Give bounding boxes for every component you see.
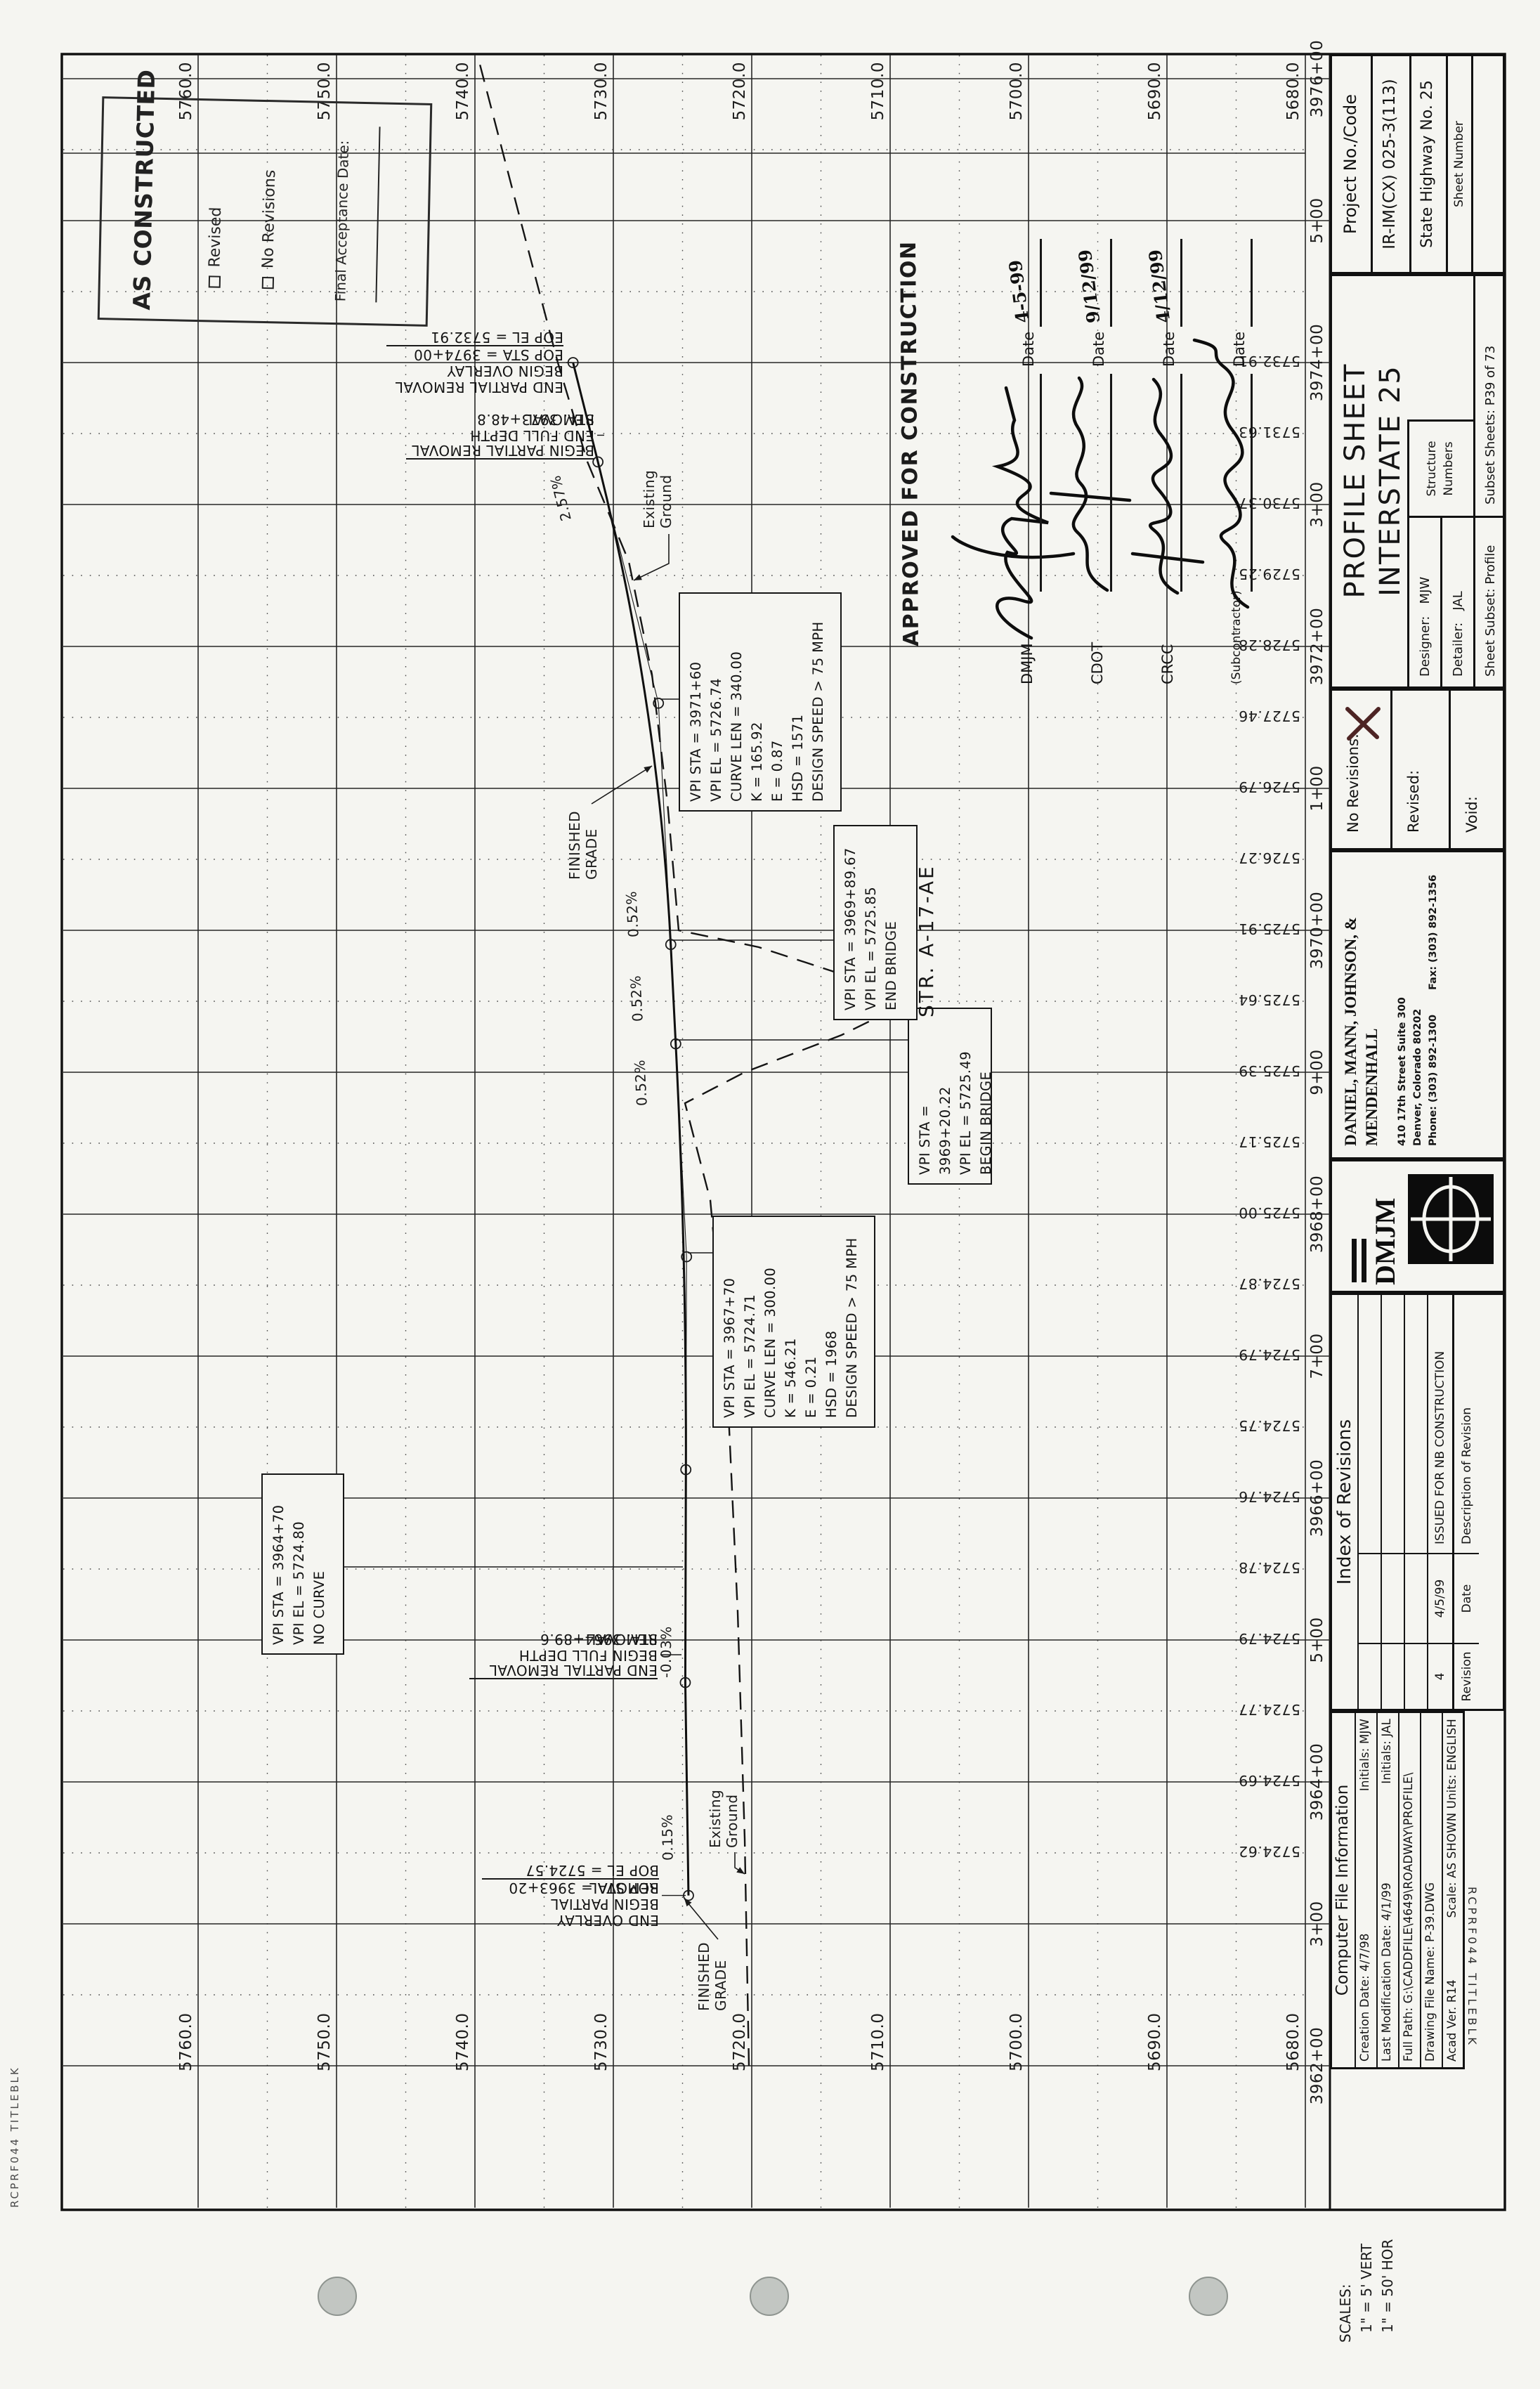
cfi-row-filename: Drawing File Name: P-39.DWG bbox=[1420, 1713, 1442, 2067]
scales-note: SCALES: 1" = 5' VERT 1" = 50' HOR bbox=[1335, 2239, 1398, 2343]
cfi-title: Computer File Information bbox=[1332, 1713, 1355, 2067]
landscape-sheet: 5760.05760.05750.05750.05740.05740.05730… bbox=[0, 0, 1540, 2389]
firm-addr-1: 410 17th Street Suite 300 bbox=[1397, 997, 1408, 1146]
approval-agency: DMJM bbox=[1019, 643, 1036, 684]
cfi-lastmod-initials: Initials: JAL bbox=[1380, 1719, 1398, 1784]
station-callout-line: BEGIN PARTIAL REMOVAL bbox=[482, 1896, 659, 1912]
vpi-data-line: CURVE LEN = 300.00 bbox=[760, 1225, 781, 1418]
scanned-profile-sheet: { "stamp": { "title": "AS CONSTRUCTED", … bbox=[0, 0, 1540, 2389]
station-callout-line: STA. 3964+89.6 bbox=[469, 1631, 658, 1647]
approval-date-value: 4/12/99 bbox=[1145, 248, 1175, 324]
elevation-label-left: 5710.0 bbox=[869, 2013, 887, 2071]
elevation-label-right: 5720.0 bbox=[731, 62, 749, 146]
cfi-row-acad: Acad Ver. R14 Scale: AS SHOWN Units: ENG… bbox=[1442, 1713, 1464, 2067]
date-line bbox=[1180, 239, 1182, 327]
vpi-data-line: DESIGN SPEED > 75 MPH bbox=[842, 1225, 862, 1418]
signature-line bbox=[1180, 374, 1182, 592]
stamp-revised-row: Revised bbox=[206, 207, 225, 287]
elevation-label-left: 5700.0 bbox=[1007, 2013, 1026, 2071]
subset-sheets-cell: Subset Sheets: P39 of 73 bbox=[1473, 275, 1505, 518]
structure-id-label: STR. A-17-AE bbox=[915, 864, 938, 1017]
ior-revision-value: 4 bbox=[1428, 1644, 1452, 1709]
profile-elevation-value: 5724.78 bbox=[1181, 1559, 1300, 1576]
firm-phone: Phone: (303) 892-1300 bbox=[1428, 1015, 1439, 1146]
vpi-data-line: VPI STA = 3971+60 bbox=[686, 602, 706, 802]
station-callout-line: BEGIN PARTIAL REMOVAL bbox=[406, 443, 594, 460]
profile-elevation-value: 5726.79 bbox=[1181, 779, 1300, 795]
vpi-data-line: BEGIN BRIDGE bbox=[976, 1017, 996, 1175]
station-callout: END OVERLAYBEGIN PARTIAL REMOVALBOP STA … bbox=[482, 1863, 659, 1928]
sheet-title-line1: PROFILE SHEET bbox=[1339, 275, 1371, 686]
ior-header-row: Revision Date Description of Revision bbox=[1452, 1295, 1479, 1709]
vpi-data-line: NO CURVE bbox=[309, 1483, 329, 1645]
profile-elevation-value: 5724.79 bbox=[1181, 1346, 1300, 1363]
ior-revision-header: Revision bbox=[1454, 1644, 1479, 1709]
station-label: 3974+00 bbox=[1308, 320, 1326, 405]
station-label: 5+00 bbox=[1308, 178, 1326, 263]
approval-block: APPROVED FOR CONSTRUCTION DMJMDate4-5-99… bbox=[898, 239, 1277, 689]
stamp-norev-row: No Revisions bbox=[259, 170, 280, 289]
date-line bbox=[1110, 239, 1112, 327]
ior-empty-row bbox=[1381, 1295, 1404, 1709]
state-highway-number: State Highway No. 25 bbox=[1409, 56, 1446, 272]
as-constructed-stamp: AS CONSTRUCTED Revised No Revisions Fina… bbox=[98, 96, 433, 327]
approval-date-value: 4-5-99 bbox=[1005, 259, 1033, 324]
vpi-data-box: VPI STA = 3969+89.67VPI EL = 5725.85END … bbox=[833, 825, 918, 1020]
project-code-box: Project No./Code IR-IM(CX) 025-3(113) St… bbox=[1330, 54, 1505, 274]
vpi-data-line: VPI STA = 3969+20.22 bbox=[915, 1017, 955, 1175]
elevation-label-right: 5740.0 bbox=[454, 62, 472, 146]
ior-date-header: Date bbox=[1454, 1554, 1479, 1644]
dmjm-logo-box: DMJM bbox=[1330, 1159, 1505, 1293]
profile-elevation-value: 5727.46 bbox=[1181, 708, 1300, 724]
cfi-row-fullpath: Full Path: G:\CADDFILE\4649\ROADWAY\PROF… bbox=[1398, 1713, 1420, 2067]
no-revisions-field-label: No Revisions: bbox=[1345, 734, 1362, 833]
vpi-data-line: K = 165.92 bbox=[747, 602, 767, 802]
station-callout-line: BEGIN FULL DEPTH REMOVAL bbox=[469, 1647, 658, 1663]
station-label: 3966+00 bbox=[1308, 1456, 1326, 1540]
structure-label-2: Numbers bbox=[1440, 422, 1457, 516]
vpi-data-box: VPI STA = 3967+70VPI EL = 5724.71CURVE L… bbox=[712, 1216, 875, 1428]
revised-checkbox bbox=[209, 275, 221, 287]
station-callout-line: EOP STA = 3974+00 bbox=[386, 346, 563, 363]
station-label: 9+00 bbox=[1308, 1030, 1326, 1114]
revised-field-label: Revised: bbox=[1405, 770, 1422, 833]
signature-line bbox=[1040, 374, 1042, 592]
ground-grade-label: ExistingGround bbox=[707, 1790, 740, 1848]
profile-elevation-value: 5724.76 bbox=[1181, 1488, 1300, 1505]
vpi-data-line: VPI EL = 5724.80 bbox=[289, 1483, 309, 1645]
cfi-acad-ver: Acad Ver. R14 bbox=[1445, 1979, 1464, 2062]
cfi-row-lastmod: Last Modification Date: 4/1/99 Initials:… bbox=[1376, 1713, 1398, 2067]
station-callout-line: END PARTIAL REMOVAL bbox=[469, 1663, 658, 1679]
station-callout-line: STA. 3973+48.8 bbox=[406, 411, 594, 427]
station-callout: BEGIN PARTIAL REMOVALEND FULL DEPTH REMO… bbox=[406, 411, 594, 460]
vpi-data-line: CURVE LEN = 340.00 bbox=[726, 602, 747, 802]
profile-elevation-value: 5724.77 bbox=[1181, 1701, 1300, 1718]
scales-title: SCALES: bbox=[1335, 2239, 1356, 2343]
station-label: 3976+00 bbox=[1308, 37, 1326, 121]
station-label: 3964+00 bbox=[1308, 1740, 1326, 1824]
ior-empty-row bbox=[1357, 1295, 1381, 1709]
approval-date-value: 9/12/99 bbox=[1075, 248, 1104, 324]
no-revisions-checkbox bbox=[262, 277, 274, 289]
sheet-title-box: PROFILE SHEET INTERSTATE 25 Designer: MJ… bbox=[1330, 274, 1505, 689]
profile-elevation-value: 5725.17 bbox=[1181, 1133, 1300, 1150]
profile-elevation-value: 5725.00 bbox=[1181, 1204, 1300, 1221]
cfi-creation-initials: Initials: MJW bbox=[1358, 1719, 1376, 1791]
firm-name-2: MENDENHALL bbox=[1363, 1029, 1381, 1146]
ground-grade-label: ExistingGround bbox=[641, 470, 674, 528]
signature-line bbox=[1251, 374, 1253, 592]
station-callout-line: BOP STA = 3963+20 bbox=[482, 1880, 659, 1896]
dmjm-logo-text: DMJM bbox=[1369, 1198, 1402, 1285]
elevation-label-left: 5720.0 bbox=[731, 2013, 749, 2071]
dmjm-logo-bar bbox=[1352, 1239, 1357, 1282]
elevation-label-left: 5760.0 bbox=[177, 2013, 195, 2071]
vpi-data-line: VPI EL = 5725.85 bbox=[861, 835, 881, 1010]
no-revisions-label: No Revisions bbox=[259, 170, 279, 269]
ior-description-value: ISSUED FOR NB CONSTRUCTION bbox=[1428, 1295, 1452, 1554]
ground-grade-label: FINISHEDGRADE bbox=[696, 1942, 729, 2011]
date-line bbox=[1251, 239, 1253, 327]
final-acceptance-label: Final Acceptance Date: bbox=[332, 140, 352, 301]
vpi-data-line: VPI EL = 5724.71 bbox=[740, 1225, 760, 1418]
final-acceptance-line bbox=[375, 126, 380, 302]
sheet-number-label: Sheet Number bbox=[1446, 56, 1471, 272]
vpi-data-line: DESIGN SPEED > 75 MPH bbox=[808, 602, 828, 802]
approval-signature-rows: DMJMDate4-5-99CDOTDate9/12/99CRCCDate4/1… bbox=[898, 239, 1277, 689]
elevation-label-right: 5680.0 bbox=[1284, 62, 1303, 146]
status-void: Void: bbox=[1449, 691, 1507, 848]
revision-status-box: No Revisions: Revised: Void: bbox=[1330, 689, 1505, 850]
station-callout: END PARTIAL REMOVALBEGIN OVERLAYEOP STA … bbox=[386, 330, 563, 395]
ior-description-header: Description of Revision bbox=[1454, 1295, 1479, 1554]
vpi-data-box: VPI STA = 3971+60VPI EL = 5726.74CURVE L… bbox=[679, 592, 842, 812]
firm-box: DANIEL, MANN, JOHNSON, & MENDENHALL 410 … bbox=[1330, 850, 1505, 1159]
elevation-label-right: 5700.0 bbox=[1007, 62, 1026, 146]
elevation-label-left: 5680.0 bbox=[1284, 2013, 1303, 2071]
station-callout-line: END OVERLAY bbox=[482, 1912, 659, 1928]
grade-percent-label: -0.03% bbox=[658, 1626, 674, 1678]
station-label: 3972+00 bbox=[1308, 604, 1326, 689]
approval-date-label: Date bbox=[1020, 332, 1037, 367]
plot-file-tag: RCPRF044 TITLEBLK bbox=[1466, 1887, 1479, 2069]
ground-grade-label: FINISHEDGRADE bbox=[566, 811, 600, 880]
detailer-cell: Detailer: JAL bbox=[1440, 518, 1473, 686]
profile-elevation-value: 5724.62 bbox=[1181, 1843, 1300, 1860]
plot-file-tag-margin: RCPRF044 TITLEBLK bbox=[8, 2066, 21, 2208]
ior-date-value: 4/5/99 bbox=[1428, 1554, 1452, 1644]
no-revisions-x-mark bbox=[1342, 702, 1384, 744]
detailer-value: JAL bbox=[1451, 591, 1466, 610]
station-label: 3968+00 bbox=[1308, 1172, 1326, 1256]
sheet-subset-cell: Sheet Subset: Profile bbox=[1473, 518, 1505, 686]
cfi-scale-units: Scale: AS SHOWN Units: ENGLISH bbox=[1445, 1719, 1464, 1918]
cfi-drawing-file-name: Drawing File Name: P-39.DWG bbox=[1423, 1882, 1442, 2062]
ior-empty-row bbox=[1404, 1295, 1427, 1709]
vpi-data-line: E = 0.21 bbox=[801, 1225, 821, 1418]
scales-hor: 1" = 50' HOR bbox=[1377, 2239, 1398, 2343]
dmjm-emblem-icon bbox=[1408, 1174, 1494, 1264]
elevation-label-left: 5690.0 bbox=[1146, 2013, 1164, 2071]
stamp-title: AS CONSTRUCTED bbox=[128, 106, 159, 311]
final-acceptance-row: Final Acceptance Date: bbox=[332, 140, 352, 301]
vpi-data-line: K = 546.21 bbox=[781, 1225, 801, 1418]
station-label: 3+00 bbox=[1308, 462, 1326, 547]
sheet-title-line2: INTERSTATE 25 bbox=[1374, 275, 1407, 686]
designer-value: MJW bbox=[1418, 577, 1433, 604]
vpi-data-line: VPI EL = 5726.74 bbox=[706, 602, 726, 802]
sheet-number-value bbox=[1471, 56, 1505, 272]
elevation-label-right: 5710.0 bbox=[869, 62, 887, 146]
station-callout-line: BOP EL = 5724.57 bbox=[482, 1863, 659, 1880]
firm-name-1: DANIEL, MANN, JOHNSON, & bbox=[1342, 917, 1360, 1146]
profile-elevation-value: 5725.39 bbox=[1181, 1062, 1300, 1079]
vpi-data-line: VPI STA = 3969+89.67 bbox=[840, 835, 861, 1010]
profile-elevation-value: 5724.69 bbox=[1181, 1772, 1300, 1789]
station-label: 3970+00 bbox=[1308, 888, 1326, 972]
date-line bbox=[1040, 239, 1042, 327]
vpi-data-line: HSD = 1968 bbox=[821, 1225, 842, 1418]
station-label: 3+00 bbox=[1308, 1882, 1326, 1966]
firm-fax: Fax: (303) 892-1356 bbox=[1428, 875, 1439, 990]
station-label: 5+00 bbox=[1308, 1598, 1326, 1682]
station-callout-line: BEGIN OVERLAY bbox=[386, 363, 563, 379]
approval-agency: CDOT bbox=[1089, 642, 1106, 684]
station-callout: END PARTIAL REMOVALBEGIN FULL DEPTH REMO… bbox=[469, 1631, 658, 1679]
vpi-data-box: VPI STA = 3969+20.22VPI EL = 5725.49BEGI… bbox=[908, 1008, 992, 1185]
ior-title: Index of Revisions bbox=[1332, 1295, 1357, 1709]
profile-elevation-value: 5725.91 bbox=[1181, 920, 1300, 937]
profile-elevation-value: 5724.75 bbox=[1181, 1417, 1300, 1434]
elevation-label-right: 5730.0 bbox=[592, 62, 611, 146]
elevation-label-right: 5690.0 bbox=[1146, 62, 1164, 146]
station-label: 1+00 bbox=[1308, 746, 1326, 831]
ior-data-row: 4 4/5/99 ISSUED FOR NB CONSTRUCTION bbox=[1427, 1295, 1452, 1709]
approval-date-label: Date bbox=[1090, 332, 1107, 367]
project-code-label: Project No./Code bbox=[1332, 56, 1371, 272]
designer-cell: Designer: MJW bbox=[1407, 518, 1440, 686]
dmjm-logo-bar bbox=[1362, 1239, 1366, 1282]
elevation-label-left: 5750.0 bbox=[315, 2013, 334, 2071]
firm-addr-2: Denver, Colorado 80202 bbox=[1412, 1009, 1423, 1146]
scales-vert: 1" = 5' VERT bbox=[1356, 2239, 1377, 2343]
grade-percent-label: 0.15% bbox=[658, 1814, 676, 1861]
designer-label: Designer: bbox=[1418, 616, 1433, 677]
approval-agency: (Subcontractor) bbox=[1229, 590, 1244, 684]
cfi-row-creation: Creation Date: 4/7/98 Initials: MJW bbox=[1355, 1713, 1376, 2067]
revised-label: Revised bbox=[206, 207, 225, 267]
station-callout-line: END FULL DEPTH REMOVAL bbox=[406, 427, 594, 443]
profile-plot-area: 5760.05760.05750.05750.05740.05740.05730… bbox=[0, 0, 1540, 2389]
profile-elevation-value: 5726.27 bbox=[1181, 850, 1300, 866]
station-label: 3962+00 bbox=[1308, 2024, 1326, 2108]
cfi-lastmod-date: Last Modification Date: 4/1/99 bbox=[1380, 1882, 1398, 2062]
vpi-data-box: VPI STA = 3964+70VPI EL = 5724.80NO CURV… bbox=[261, 1473, 344, 1655]
vpi-data-line: VPI EL = 5725.49 bbox=[955, 1017, 976, 1175]
approval-date-label: Date bbox=[1231, 332, 1248, 367]
vpi-data-line: VPI STA = 3964+70 bbox=[268, 1483, 289, 1645]
structure-label-1: Structure bbox=[1423, 422, 1440, 516]
status-revised: Revised: bbox=[1390, 691, 1449, 848]
station-callout-line: EOP EL = 5732.91 bbox=[386, 330, 563, 346]
grade-percent-label: 0.52% bbox=[631, 1059, 650, 1106]
vpi-data-line: HSD = 1571 bbox=[788, 602, 808, 802]
profile-elevation-value: 5725.64 bbox=[1181, 991, 1300, 1008]
project-code-value: IR-IM(CX) 025-3(113) bbox=[1371, 56, 1409, 272]
grade-percent-label: 0.52% bbox=[622, 890, 641, 937]
profile-elevation-value: 5724.87 bbox=[1181, 1275, 1300, 1292]
computer-file-information-box: Computer File Information Creation Date:… bbox=[1330, 1711, 1465, 2069]
profile-elevation-value: 5724.79 bbox=[1181, 1630, 1300, 1647]
station-label: 7+00 bbox=[1308, 1314, 1326, 1398]
signature-line bbox=[1110, 374, 1112, 592]
grade-percent-label: 0.52% bbox=[627, 975, 646, 1022]
index-of-revisions-box: Index of Revisions 4 4/5/99 ISSUED FOR N… bbox=[1330, 1293, 1505, 1711]
vpi-data-line: VPI STA = 3967+70 bbox=[719, 1225, 740, 1418]
elevation-label-left: 5740.0 bbox=[454, 2013, 472, 2071]
detailer-label: Detailer: bbox=[1451, 623, 1466, 677]
approval-date-label: Date bbox=[1161, 332, 1177, 367]
cfi-creation-date: Creation Date: 4/7/98 bbox=[1358, 1933, 1376, 2062]
structure-numbers-cell: Structure Numbers bbox=[1407, 419, 1473, 518]
vpi-data-line: E = 0.87 bbox=[767, 602, 788, 802]
elevation-label-left: 5730.0 bbox=[592, 2013, 611, 2071]
station-callout-line: END PARTIAL REMOVAL bbox=[386, 379, 563, 395]
vpi-data-line: END BRIDGE bbox=[881, 835, 901, 1010]
cfi-full-path: Full Path: G:\CADDFILE\4649\ROADWAY\PROF… bbox=[1402, 1772, 1420, 2062]
void-field-label: Void: bbox=[1463, 796, 1480, 833]
approval-agency: CRCC bbox=[1159, 644, 1176, 684]
